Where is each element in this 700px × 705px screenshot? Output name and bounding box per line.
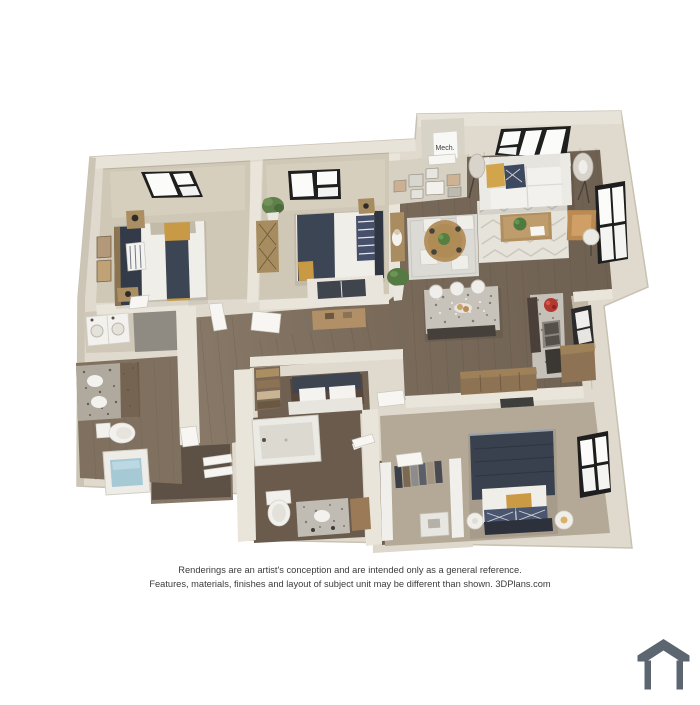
svg-text:Features, materials, finishes: Features, materials, finishes and layout… [149, 579, 551, 589]
svg-text:Renderings are an artist's con: Renderings are an artist's conception an… [178, 565, 521, 575]
svg-text:Mech.: Mech. [435, 145, 454, 152]
